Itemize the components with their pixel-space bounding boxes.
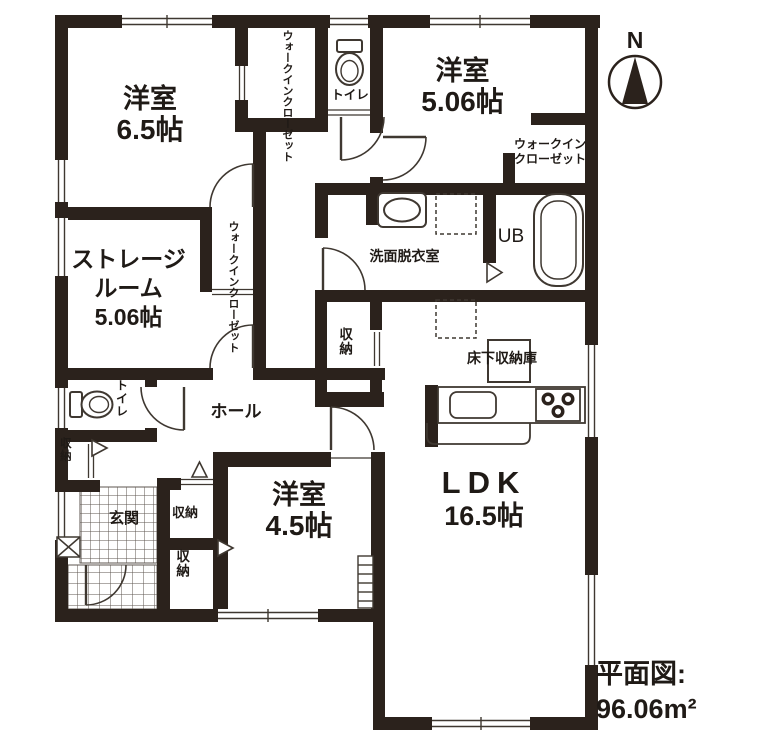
room-name: 洋室	[75, 84, 225, 114]
room-area: 5.06帖	[56, 303, 201, 332]
room-name: 洋室	[225, 480, 373, 510]
room-label-unit-bath: UB	[490, 226, 532, 247]
room-area: 5.06帖	[385, 86, 540, 117]
label-closet-entry-upper: 収納	[160, 506, 210, 521]
room-label-washroom: 洗面脱衣室	[352, 249, 457, 265]
vanity-sink-icon	[378, 193, 426, 227]
room-label-storage: ストレージ ルーム 5.06帖	[56, 245, 201, 332]
room-label-hall: ホール	[203, 402, 269, 421]
fridge-space-dashed-box	[436, 300, 476, 338]
room-label-entrance: 玄関	[94, 511, 154, 528]
room-name-line2: ルーム	[56, 274, 201, 303]
caption-title: 平面図:	[596, 657, 697, 692]
door-bedroom1	[210, 164, 253, 207]
room-label-ldk: LDK 16.5帖	[400, 466, 568, 531]
closet-left-door-marker	[92, 440, 107, 456]
wic-top-door-lines	[240, 66, 245, 100]
pantry-door-lines	[375, 332, 380, 366]
shoe-box-x	[57, 537, 80, 557]
stove-icon	[536, 389, 580, 421]
room-name: 洋室	[385, 56, 540, 86]
counter-edge	[427, 423, 530, 444]
room-area: 4.5帖	[225, 510, 373, 541]
kitchen-sink-icon	[450, 392, 496, 418]
room-label-bedroom2: 洋室 5.06帖	[385, 56, 540, 118]
room-label-bedroom1: 洋室 6.5帖	[75, 84, 225, 146]
unit-bath-door-marker	[487, 263, 502, 282]
plan-caption: 平面図: 96.06m²	[596, 657, 697, 727]
room-name: LDK	[400, 466, 568, 501]
door-toilet-left	[141, 387, 184, 430]
label-underfloor-storage: 床下収納庫	[447, 351, 557, 367]
label-closet-mid: 収納	[337, 327, 352, 373]
compass-n-label: N	[621, 28, 649, 54]
window-right-kitchen	[585, 345, 598, 437]
closet-entry-upper-door-lines	[181, 480, 213, 485]
room-label-toilet-top: トイレ	[323, 88, 377, 102]
label-closet-entry-lower: 収納	[174, 549, 189, 603]
closet-entry-upper-door-marker	[192, 462, 207, 477]
room-area: 6.5帖	[75, 114, 225, 145]
room-label-toilet-left: トイレ	[114, 379, 127, 431]
window-bottom-ldk	[432, 717, 530, 730]
room-label-wic-top: ウォークインクローゼット	[263, 30, 295, 108]
room-label-wic-mid: ウォークインクローゼット	[209, 221, 241, 299]
room-label-bedroom3: 洋室 4.5帖	[225, 480, 373, 542]
door-bedroom3	[331, 407, 374, 450]
toilet-top-threshold	[328, 110, 370, 115]
floor-plan: 洋室 6.5帖 洋室 5.06帖 ストレージ ルーム 5.06帖 洋室 4.5帖…	[0, 0, 761, 750]
window-bottom-bedroom3	[218, 609, 318, 622]
room-label-wic-right: ウォークイン クローゼット	[508, 137, 592, 167]
window-left-toilet	[55, 388, 68, 428]
toilet-icon-left	[70, 392, 113, 418]
compass-icon	[609, 56, 661, 108]
washer-space-dashed-box	[436, 194, 476, 234]
window-top-right	[430, 15, 530, 28]
window-top-middle	[330, 15, 368, 28]
label-closet-left: 収納	[58, 437, 71, 483]
window-top-left	[122, 15, 212, 28]
kitchen-counter	[427, 387, 585, 444]
room-name-line1: ストレージ	[56, 245, 201, 274]
window-right-ldk	[585, 575, 598, 665]
bathtub-icon	[534, 194, 583, 286]
wic-right-line1: ウォークイン	[508, 137, 592, 152]
window-left-entrance	[55, 492, 68, 540]
caption-area: 96.06m²	[596, 692, 697, 727]
door-bedroom2	[383, 137, 426, 180]
room-area: 16.5帖	[400, 501, 568, 531]
window-left-bedroom1	[55, 160, 68, 202]
wic-right-line2: クローゼット	[508, 152, 592, 167]
toilet-icon-top	[336, 40, 363, 85]
shelf-strip	[358, 556, 373, 608]
entrance-tile-floor	[68, 487, 157, 609]
